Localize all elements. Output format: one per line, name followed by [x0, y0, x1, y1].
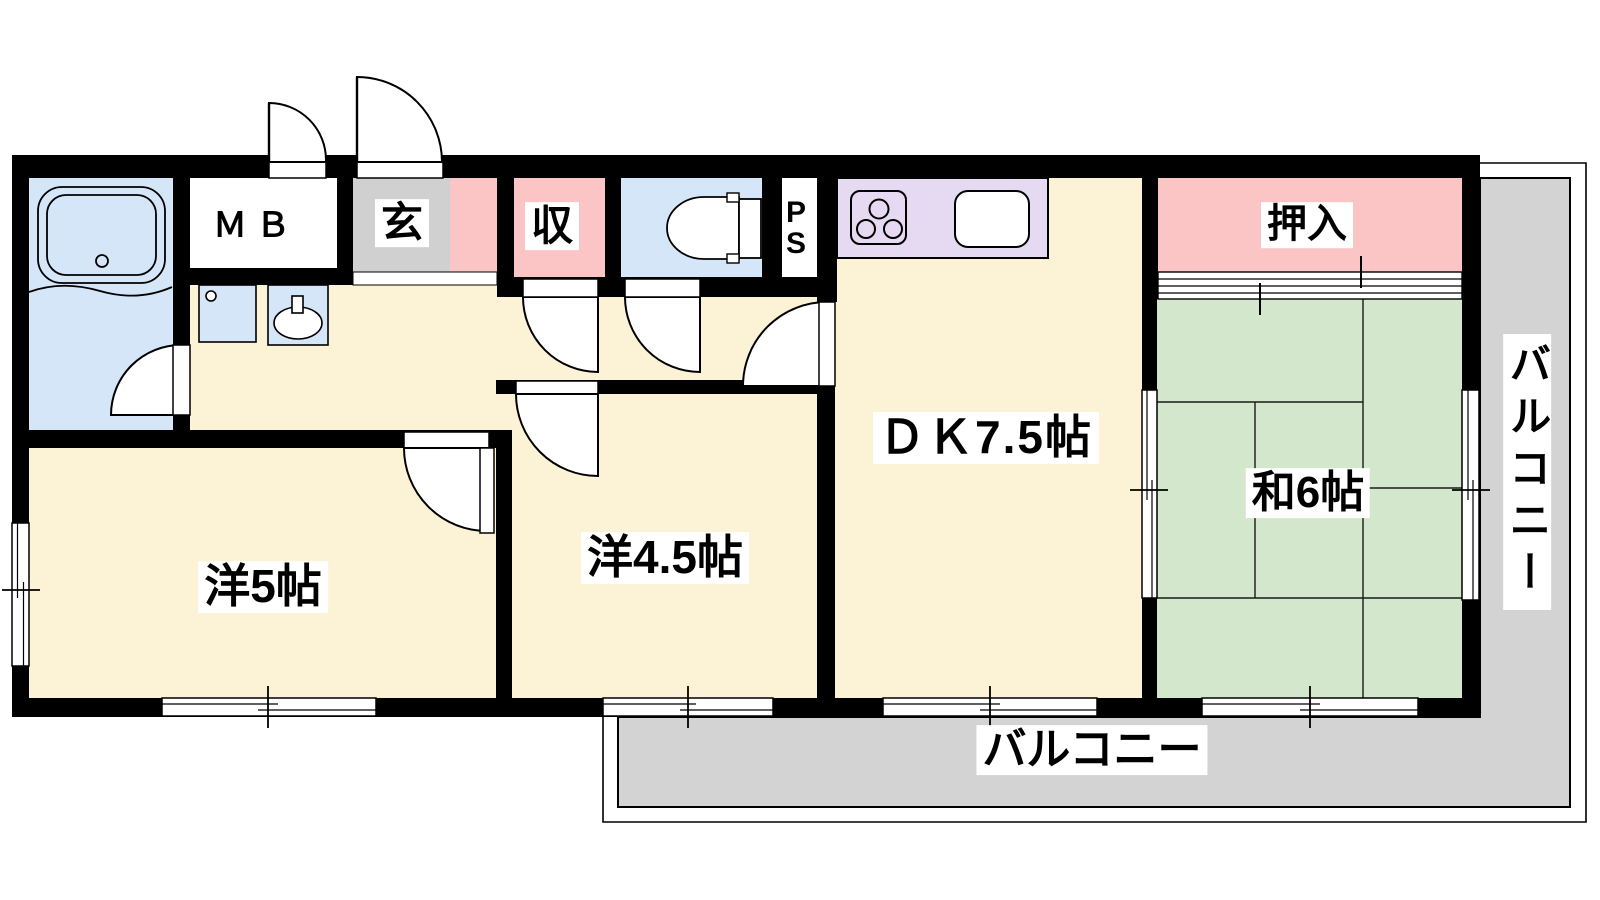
meter-box-door [269, 103, 326, 178]
room-label-storage: 収 [525, 202, 579, 250]
room-label-oshiire: 押入 [1261, 202, 1353, 248]
room-label-dk: ＤＫ7.5帖 [873, 412, 1099, 464]
floorplan-drawing [0, 0, 1600, 900]
kitchen-counter [837, 178, 1048, 258]
room-label-meter-box: ＭＢ [207, 206, 305, 245]
room-label-balcony-bottom: バルコニー [976, 725, 1207, 775]
shoe-cabinet [450, 178, 497, 272]
room-label-western5: 洋5帖 [198, 561, 328, 613]
pipe-space-letter-p: P [786, 197, 806, 228]
vanity-sink-icon [268, 285, 328, 345]
room-label-balcony-right: バルコニー [1503, 334, 1551, 610]
room-label-pipe-space: P S [786, 197, 806, 259]
kitchen-sink-icon [955, 191, 1029, 247]
floorplan-canvas: 洋5帖 洋4.5帖 ＤＫ7.5帖 和6帖 押入 ＭＢ 玄 収 P S バルコニー… [0, 0, 1600, 900]
pipe-space-letter-s: S [786, 228, 806, 259]
room-label-western45: 洋4.5帖 [581, 532, 749, 584]
room-label-entrance: 玄 [375, 199, 429, 247]
entrance-step [353, 272, 497, 285]
washing-machine-pan-icon [199, 285, 256, 342]
room-label-japanese6: 和6帖 [1246, 468, 1370, 518]
entrance-door [357, 77, 443, 178]
toilet-icon [667, 193, 761, 263]
